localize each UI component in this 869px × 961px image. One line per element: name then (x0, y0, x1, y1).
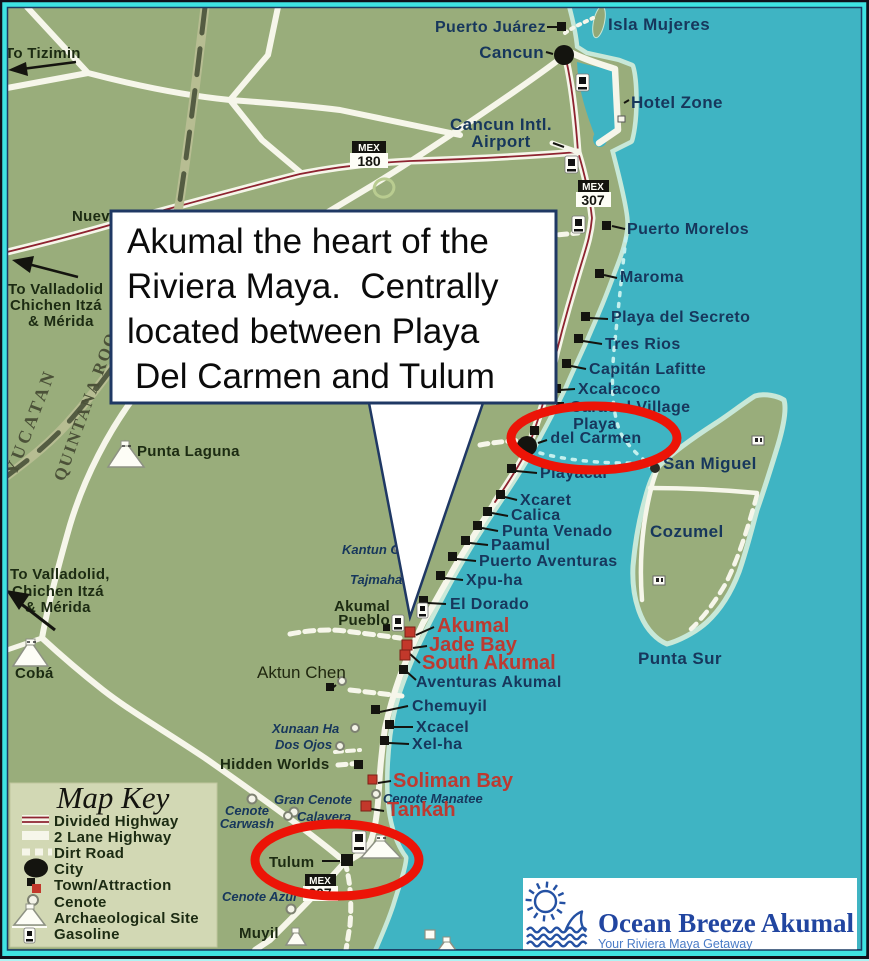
svg-text:Tres Rios: Tres Rios (605, 336, 681, 353)
svg-text:Airport: Airport (471, 132, 530, 151)
svg-text:Riviera Maya. Centrally: Riviera Maya. Centrally (127, 267, 499, 306)
svg-text:307: 307 (581, 192, 605, 208)
svg-text:Calica: Calica (511, 507, 561, 524)
svg-text:Tulum: Tulum (269, 854, 314, 871)
svg-text:Carwash: Carwash (220, 816, 274, 831)
svg-text:Hotel Zone: Hotel Zone (631, 93, 723, 112)
svg-text:& Mérida: & Mérida (28, 313, 94, 330)
svg-text:located between Playa: located between Playa (127, 312, 480, 351)
svg-text:South Akumal: South Akumal (422, 652, 556, 674)
svg-text:Puerto Aventuras: Puerto Aventuras (479, 553, 618, 570)
svg-text:del Carmen: del Carmen (550, 430, 641, 447)
svg-text:Divided Highway: Divided Highway (54, 813, 179, 830)
svg-text:Aktun Chen: Aktun Chen (257, 663, 346, 682)
svg-text:Ocean Breeze Akumal: Ocean Breeze Akumal (598, 908, 854, 938)
svg-text:Maroma: Maroma (620, 269, 684, 286)
svg-text:Tajmaha: Tajmaha (350, 572, 402, 587)
svg-text:Chichen Itzá: Chichen Itzá (10, 297, 102, 314)
svg-text:Puerto Morelos: Puerto Morelos (627, 221, 749, 238)
svg-text:Cozumel: Cozumel (650, 522, 724, 541)
svg-text:Pueblo: Pueblo (338, 612, 390, 629)
svg-text:180: 180 (357, 153, 381, 169)
svg-text:To Valladolid: To Valladolid (8, 281, 103, 298)
svg-text:San Miguel: San Miguel (663, 454, 757, 473)
svg-text:Puerto Juárez: Puerto Juárez (435, 19, 546, 36)
svg-text:Dos Ojos: Dos Ojos (275, 737, 332, 752)
svg-text:Xunaan Ha: Xunaan Ha (271, 721, 339, 736)
svg-text:Kantun C: Kantun C (342, 542, 400, 557)
svg-text:Dirt Road: Dirt Road (54, 845, 124, 862)
svg-text:Xel-ha: Xel-ha (412, 736, 462, 753)
svg-text:Punta Sur: Punta Sur (638, 649, 722, 668)
svg-text:Capitán Lafitte: Capitán Lafitte (589, 361, 706, 378)
svg-text:Playa del Secreto: Playa del Secreto (611, 309, 750, 326)
svg-text:Tankah: Tankah (387, 799, 456, 821)
svg-text:Gran Cenote: Gran Cenote (274, 792, 352, 807)
svg-text:Punta Laguna: Punta Laguna (137, 443, 240, 460)
svg-text:Cancun: Cancun (479, 43, 544, 62)
svg-text:Xcalacoco: Xcalacoco (578, 381, 661, 398)
svg-text:Del Carmen and Tulum: Del Carmen and Tulum (135, 357, 495, 396)
svg-text:Town/Attraction: Town/Attraction (54, 877, 172, 894)
svg-text:Aventuras Akumal: Aventuras Akumal (416, 674, 562, 691)
svg-text:Map Key: Map Key (56, 780, 170, 815)
svg-text:Gasoline: Gasoline (54, 926, 120, 943)
svg-text:2 Lane Highway: 2 Lane Highway (54, 829, 172, 846)
svg-text:Cenote: Cenote (54, 894, 107, 911)
svg-text:Soliman Bay: Soliman Bay (393, 770, 514, 792)
svg-text:To Valladolid,: To Valladolid, (10, 566, 110, 583)
svg-text:Isla Mujeres: Isla Mujeres (608, 15, 710, 34)
svg-text:Cobá: Cobá (15, 665, 54, 682)
svg-text:Xpu-ha: Xpu-ha (466, 572, 523, 589)
svg-text:Your Riviera Maya Getaway: Your Riviera Maya Getaway (598, 937, 753, 951)
svg-text:El Dorado: El Dorado (450, 596, 529, 613)
svg-text:Akumal the heart of the: Akumal the heart of the (127, 222, 489, 261)
svg-text:Muyil: Muyil (239, 925, 279, 942)
svg-text:City: City (54, 861, 84, 878)
svg-text:To Tizimin: To Tizimin (5, 45, 81, 62)
svg-text:Archaeological Site: Archaeological Site (54, 910, 199, 927)
svg-text:Paamul: Paamul (491, 537, 550, 554)
svg-text:Chemuyil: Chemuyil (412, 698, 487, 715)
svg-text:Hidden Worlds: Hidden Worlds (220, 756, 329, 773)
svg-text:Xcacel: Xcacel (416, 719, 469, 736)
